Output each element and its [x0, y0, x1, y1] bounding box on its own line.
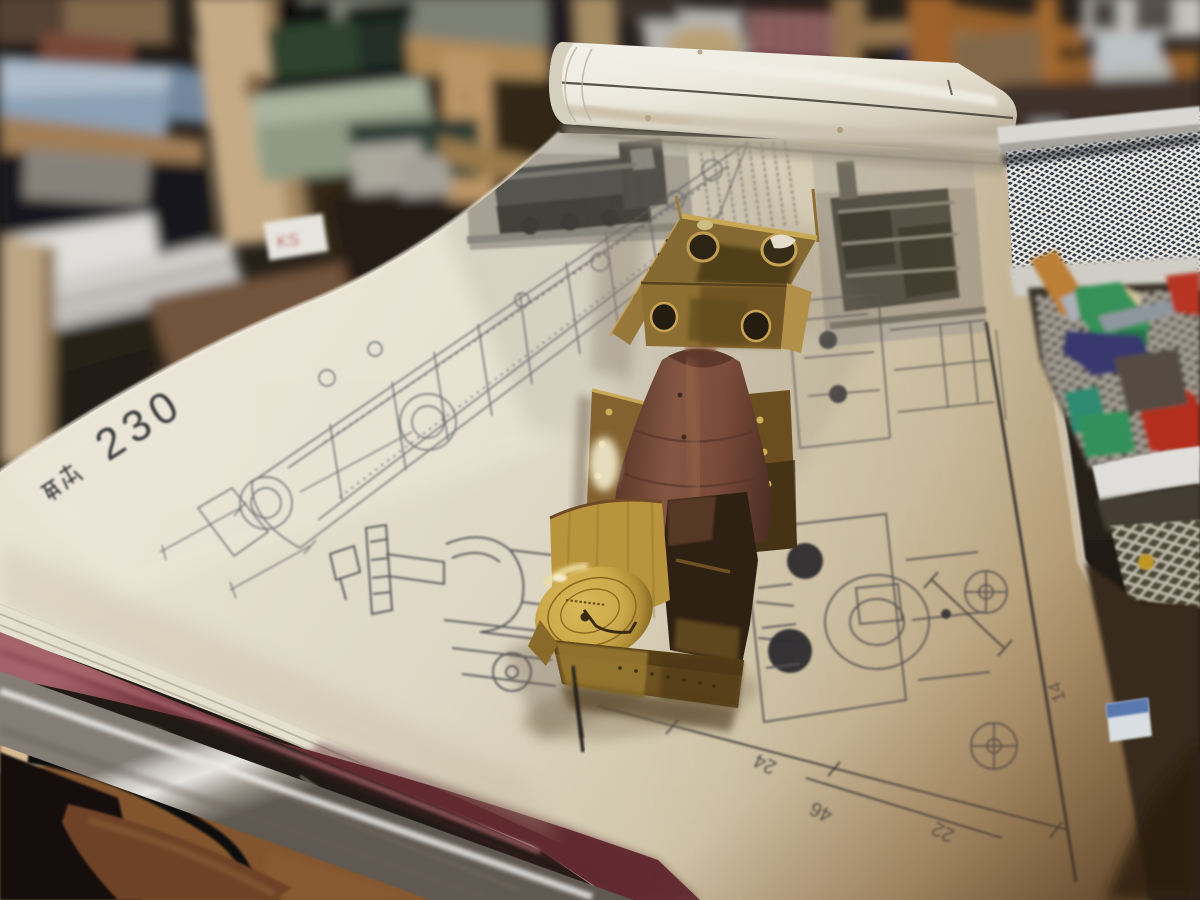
svg-text:KS: KS — [275, 230, 300, 252]
